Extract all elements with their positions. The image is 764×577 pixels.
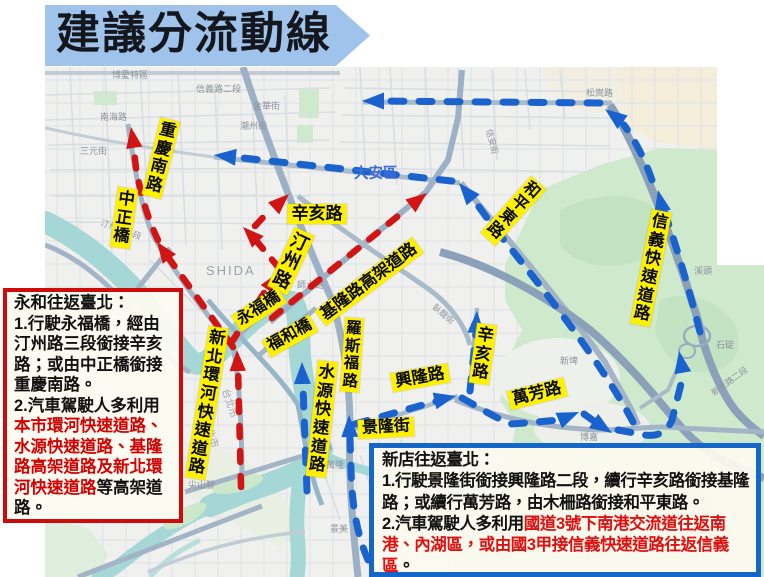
svg-text:松嵩路: 松嵩路: [586, 87, 613, 98]
svg-text:博愛特區: 博愛特區: [112, 69, 148, 80]
svg-text:大安區: 大安區: [354, 164, 398, 182]
svg-text:南海路: 南海路: [100, 111, 127, 122]
svg-text:景美: 景美: [330, 523, 348, 534]
svg-text:金華街: 金華街: [253, 100, 280, 111]
svg-text:萬隆: 萬隆: [326, 459, 344, 470]
svg-text:溪頭: 溪頭: [694, 265, 712, 276]
svg-text:博嘉: 博嘉: [580, 431, 598, 442]
svg-text:新埤: 新埤: [560, 355, 578, 366]
svg-text:尖山腳: 尖山腳: [188, 479, 215, 490]
svg-text:石碇: 石碇: [716, 339, 734, 350]
svg-text:SHIDA: SHIDA: [206, 263, 256, 278]
svg-text:信義路二段: 信義路二段: [196, 83, 241, 94]
svg-text:三元街: 三元街: [80, 145, 107, 156]
svg-text:潮州街: 潮州街: [240, 120, 267, 131]
